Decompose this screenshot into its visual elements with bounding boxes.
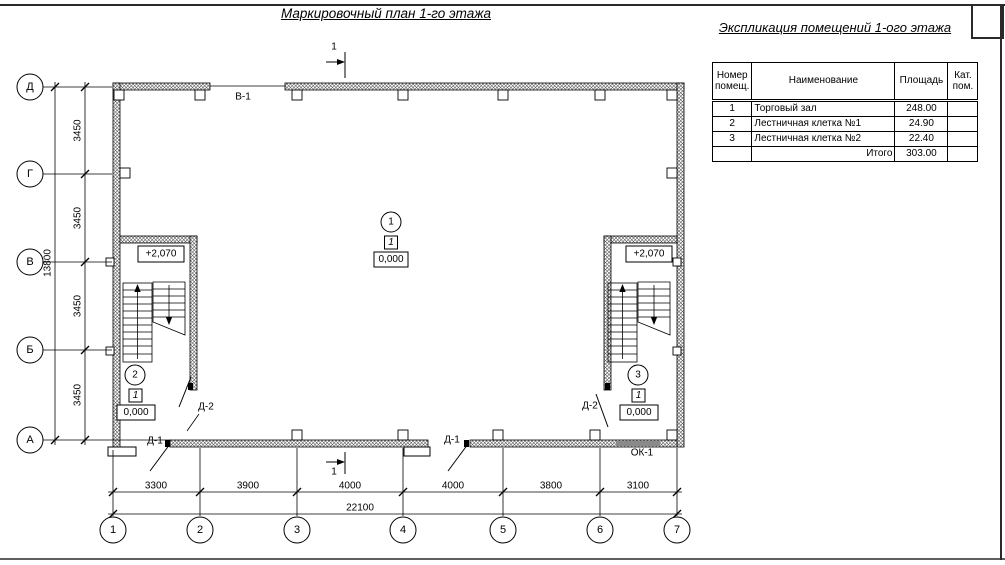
door-leader-d2-left <box>187 414 199 431</box>
dim-label: 3450 <box>73 206 84 229</box>
room-number: 3 <box>635 370 641 381</box>
bottom-wall-left <box>170 440 428 447</box>
axis-label: А <box>26 434 34 446</box>
axis-label: Б <box>26 344 33 356</box>
door-leaf-d1-left <box>108 447 136 456</box>
door-swing-d1-right <box>448 444 468 471</box>
stair1-top-wall <box>120 236 197 243</box>
axis-label: 7 <box>674 524 680 536</box>
room-elevation: 0,000 <box>123 407 148 418</box>
axis-label: Д <box>26 81 34 93</box>
axis-label: 6 <box>597 524 603 536</box>
axis-label: 2 <box>197 524 203 536</box>
stair1-side-wall <box>190 236 197 390</box>
door-swing-d1-left <box>150 444 170 471</box>
door-d1-label: Д-1 <box>147 436 163 447</box>
room-number: 1 <box>388 217 394 228</box>
room-marker-3: 3 1 0,000 <box>620 365 658 420</box>
bottom-dimensions: 3300 3900 4000 4000 3800 3100 22100 <box>108 481 682 519</box>
door-d2-label: Д-2 <box>582 401 598 412</box>
left-dimensions: 3450 3450 3450 3450 13800 <box>43 82 90 445</box>
elevation-label: +2,070 <box>146 249 177 260</box>
door-d1-label: Д-1 <box>444 435 460 446</box>
room-type: 1 <box>133 390 139 401</box>
room-type: 1 <box>636 390 642 401</box>
axis-label: В <box>26 256 33 268</box>
room-type: 1 <box>388 237 394 248</box>
axis-label: Г <box>27 168 33 180</box>
dim-label: 3800 <box>540 481 563 492</box>
top-wall-right <box>285 83 684 90</box>
axis-col-7: 7 <box>664 517 690 543</box>
dim-label: 4000 <box>339 481 362 492</box>
dim-label: 3900 <box>237 481 260 492</box>
elevation-label: +2,070 <box>634 249 665 260</box>
dim-total-label: 22100 <box>346 503 374 514</box>
drawing-sheet: Маркировочный план 1-го этажа Экспликаци… <box>0 0 1005 565</box>
axis-label: 1 <box>110 524 116 536</box>
axis-col-1: 1 <box>100 517 126 543</box>
dim-label: 3100 <box>627 481 650 492</box>
dim-label: 3450 <box>73 383 84 406</box>
room-marker-1: 1 1 0,000 <box>374 212 408 267</box>
axis-col-3: 3 <box>284 517 310 543</box>
section-number: 1 <box>331 42 337 53</box>
axis-label: 3 <box>294 524 300 536</box>
section-number: 1 <box>331 467 337 478</box>
top-wall-left <box>113 83 210 90</box>
doors <box>108 377 610 471</box>
window-ok1 <box>616 441 660 446</box>
axis-col-5: 5 <box>490 517 516 543</box>
opening-labels: В-1 Д-1 Д-1 Д-2 Д-2 ОК-1 <box>147 92 654 459</box>
room-number: 2 <box>132 370 138 381</box>
axis-row-5: А <box>17 427 43 453</box>
axis-label: 4 <box>400 524 406 536</box>
door-d2-label: Д-2 <box>198 402 214 413</box>
floor-plan-drawing: В-1 Д-1 Д-1 Д-2 Д-2 ОК-1 +2,070 +2,070 1… <box>0 0 1005 565</box>
dim-label: 3450 <box>73 294 84 317</box>
dim-label: 3300 <box>145 481 168 492</box>
axis-label: 5 <box>500 524 506 536</box>
axis-lines <box>43 87 677 516</box>
axis-col-2: 2 <box>187 517 213 543</box>
staircase-right <box>608 282 670 362</box>
dim-total-label: 13800 <box>43 249 54 277</box>
dim-label: 4000 <box>442 481 465 492</box>
axis-col-6: 6 <box>587 517 613 543</box>
room-marker-2: 2 1 0,000 <box>117 365 155 420</box>
door-leaf-d1-right <box>404 447 430 456</box>
axis-col-4: 4 <box>390 517 416 543</box>
title-block-corner-box <box>972 5 1003 38</box>
axis-row-1: Д <box>17 74 43 100</box>
section-mark-bottom: 1 <box>326 452 345 478</box>
window-ok1-label: ОК-1 <box>631 448 654 459</box>
axis-row-2: Г <box>17 161 43 187</box>
stair2-side-wall <box>604 236 611 390</box>
staircase-left <box>123 282 185 362</box>
section-mark-top: 1 <box>326 42 345 79</box>
door-swing-d2-left <box>179 377 191 407</box>
room-elevation: 0,000 <box>378 254 403 265</box>
stair2-top-wall <box>604 236 677 243</box>
axis-row-3: В <box>17 249 43 275</box>
room-elevation: 0,000 <box>626 407 651 418</box>
gate-label: В-1 <box>235 92 251 103</box>
axis-row-4: Б <box>17 337 43 363</box>
dim-label: 3450 <box>73 119 84 142</box>
